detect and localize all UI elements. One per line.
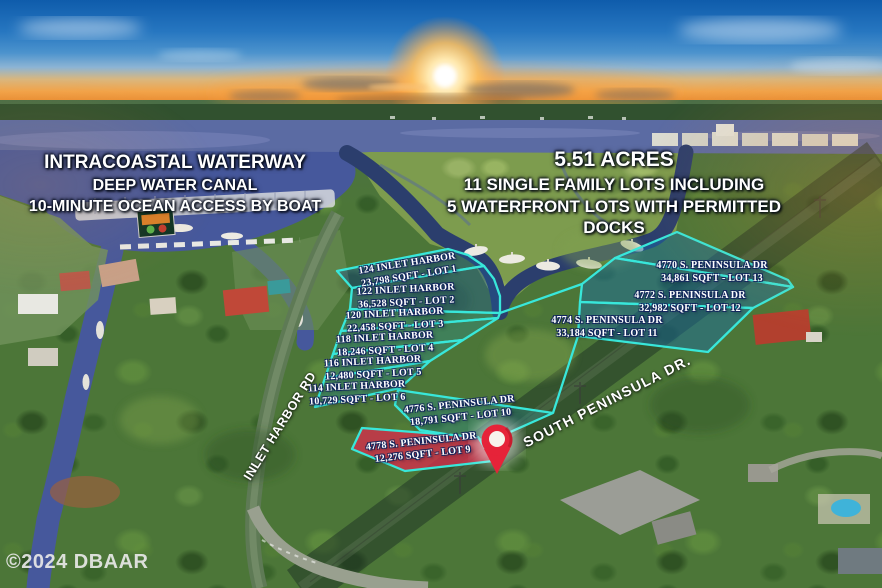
lot-size: 34,861 SQFT - LOT 13 (656, 272, 767, 285)
lot-address: 4772 S. PENINSULA DR (634, 289, 745, 302)
headline-canal: DEEP WATER CANAL (14, 175, 336, 196)
headline-docks: 5 WATERFRONT LOTS WITH PERMITTED DOCKS (418, 196, 810, 240)
watermark: ©2024 DBAAR (6, 551, 149, 574)
lot-address: 4774 S. PENINSULA DR (551, 314, 662, 327)
headline-acres: 5.51 ACRES (418, 147, 810, 174)
aerial-listing-photo: INTRACOASTAL WATERWAY DEEP WATER CANAL 1… (0, 0, 882, 588)
lot-label-13: 4770 S. PENINSULA DR 34,861 SQFT - LOT 1… (656, 259, 767, 285)
headline-waterway: INTRACOASTAL WATERWAY (14, 150, 336, 175)
lot-label-12: 4772 S. PENINSULA DR 32,982 SQFT - LOT 1… (634, 289, 745, 315)
lot-size: 33,184 SQFT - LOT 11 (551, 327, 662, 340)
lot-label-6: 114 INLET HARBOR 10,729 SQFT - LOT 6 (308, 377, 407, 408)
lot-address: 4770 S. PENINSULA DR (656, 259, 767, 272)
headline-right: 5.51 ACRES 11 SINGLE FAMILY LOTS INCLUDI… (418, 147, 810, 239)
headline-lots: 11 SINGLE FAMILY LOTS INCLUDING (418, 174, 810, 196)
headline-ocean-access: 10-MINUTE OCEAN ACCESS BY BOAT (14, 196, 336, 217)
lot-label-11: 4774 S. PENINSULA DR 33,184 SQFT - LOT 1… (551, 314, 662, 340)
headline-left: INTRACOASTAL WATERWAY DEEP WATER CANAL 1… (14, 150, 336, 217)
